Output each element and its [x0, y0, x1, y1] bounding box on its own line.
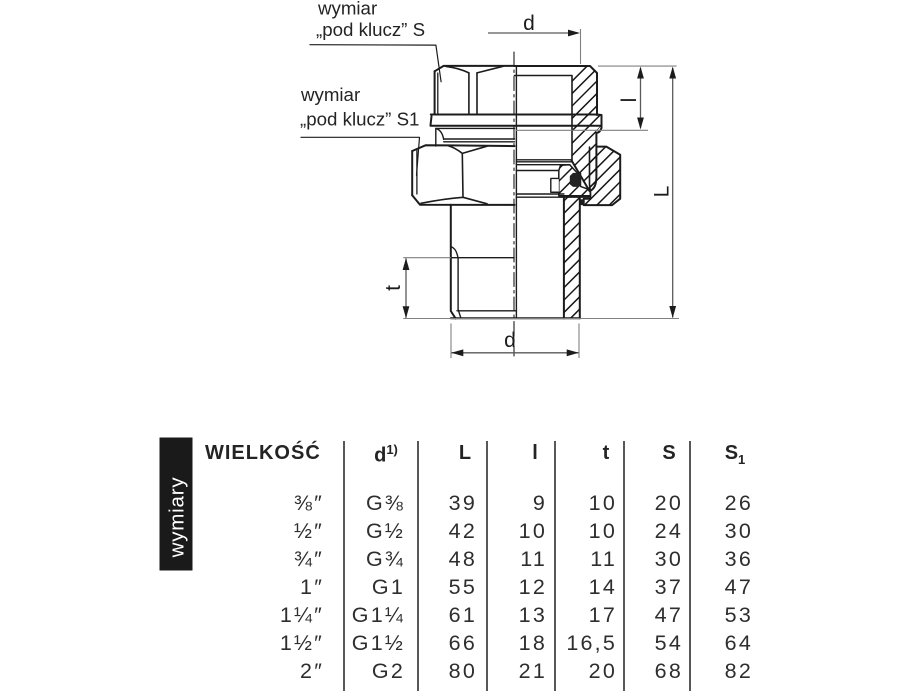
- svg-text:wymiary: wymiary: [165, 477, 188, 559]
